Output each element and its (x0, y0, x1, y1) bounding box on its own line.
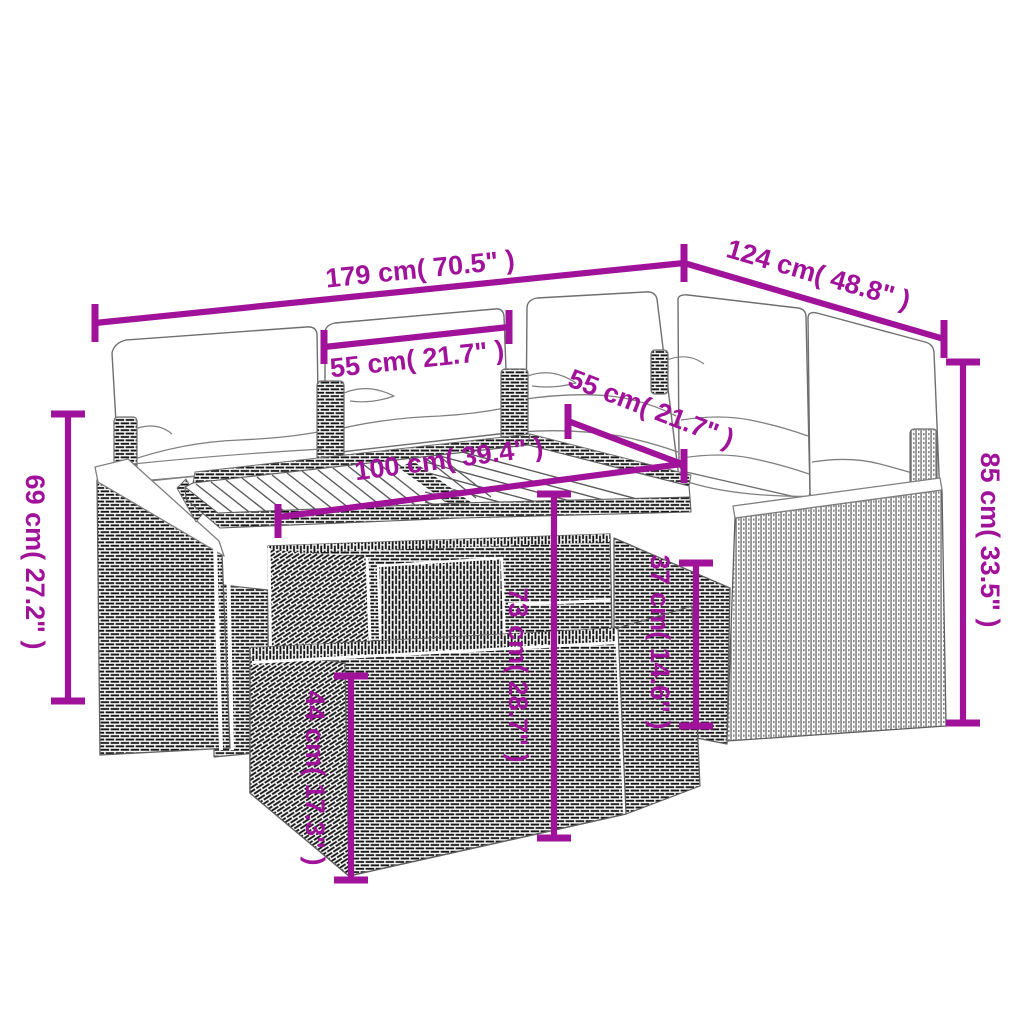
svg-text:37 cm( 14.6" ): 37 cm( 14.6" ) (645, 555, 675, 730)
svg-text:73 cm( 28.7" ): 73 cm( 28.7" ) (503, 588, 533, 763)
svg-text:179 cm( 70.5" ): 179 cm( 70.5" ) (324, 245, 516, 294)
svg-text:44 cm( 17.3" ): 44 cm( 17.3" ) (300, 691, 330, 866)
svg-text:69 cm( 27.2" ): 69 cm( 27.2" ) (20, 475, 50, 650)
svg-text:85 cm( 33.5" ): 85 cm( 33.5" ) (975, 453, 1005, 628)
